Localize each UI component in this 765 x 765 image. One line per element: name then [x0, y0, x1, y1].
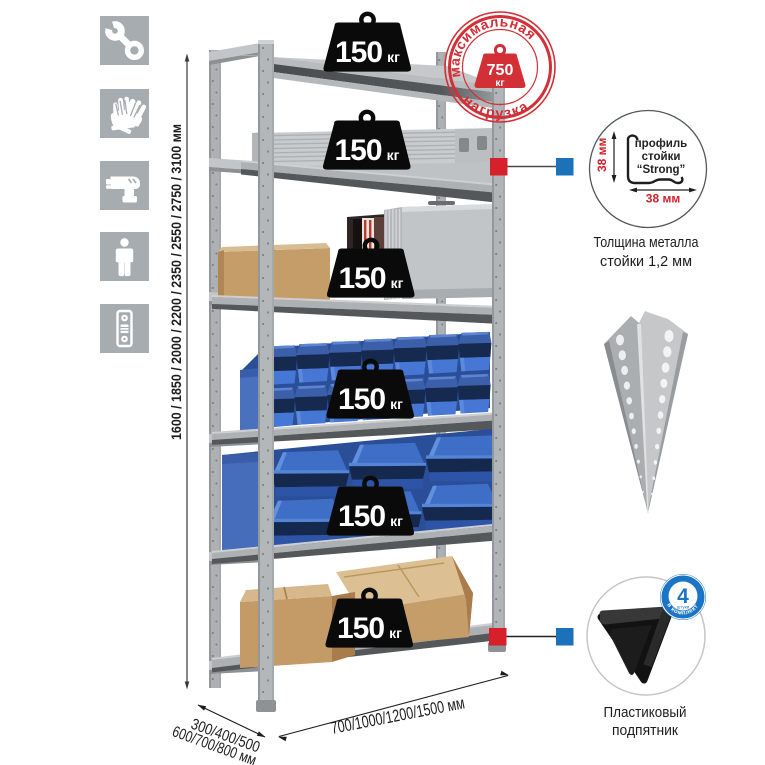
svg-text:стойки 1,2 мм: стойки 1,2 мм	[600, 253, 692, 270]
svg-text:кг: кг	[390, 513, 403, 529]
svg-text:700/1000/1200/1500 мм: 700/1000/1200/1500 мм	[329, 693, 466, 738]
svg-text:кг: кг	[390, 396, 403, 412]
svg-text:стойки: стойки	[642, 151, 681, 163]
svg-text:кг: кг	[387, 147, 400, 163]
svg-text:подпятник: подпятник	[612, 723, 679, 739]
svg-text:кг: кг	[389, 625, 402, 641]
svg-text:кг: кг	[495, 78, 504, 89]
svg-text:150: 150	[338, 262, 385, 295]
svg-text:38 мм: 38 мм	[595, 137, 609, 172]
svg-text:150: 150	[338, 383, 385, 416]
svg-text:150: 150	[338, 500, 385, 533]
svg-text:Толщина металла: Толщина металла	[594, 234, 700, 251]
svg-text:кг: кг	[387, 49, 400, 65]
svg-text:150: 150	[335, 36, 382, 69]
svg-text:кг: кг	[391, 275, 404, 291]
svg-text:Пластиковый: Пластиковый	[604, 705, 687, 721]
svg-text:150: 150	[337, 612, 384, 645]
svg-text:38 мм: 38 мм	[646, 192, 681, 206]
svg-text:профиль: профиль	[635, 138, 688, 150]
svg-text:150: 150	[334, 134, 381, 167]
svg-text:750: 750	[487, 62, 514, 79]
svg-text:“Strong”: “Strong”	[637, 164, 686, 176]
svg-text:1600 / 1850 / 2000 / 2200 / 23: 1600 / 1850 / 2000 / 2200 / 2350 / 2550 …	[169, 124, 184, 440]
svg-text:штуки: штуки	[677, 605, 690, 610]
